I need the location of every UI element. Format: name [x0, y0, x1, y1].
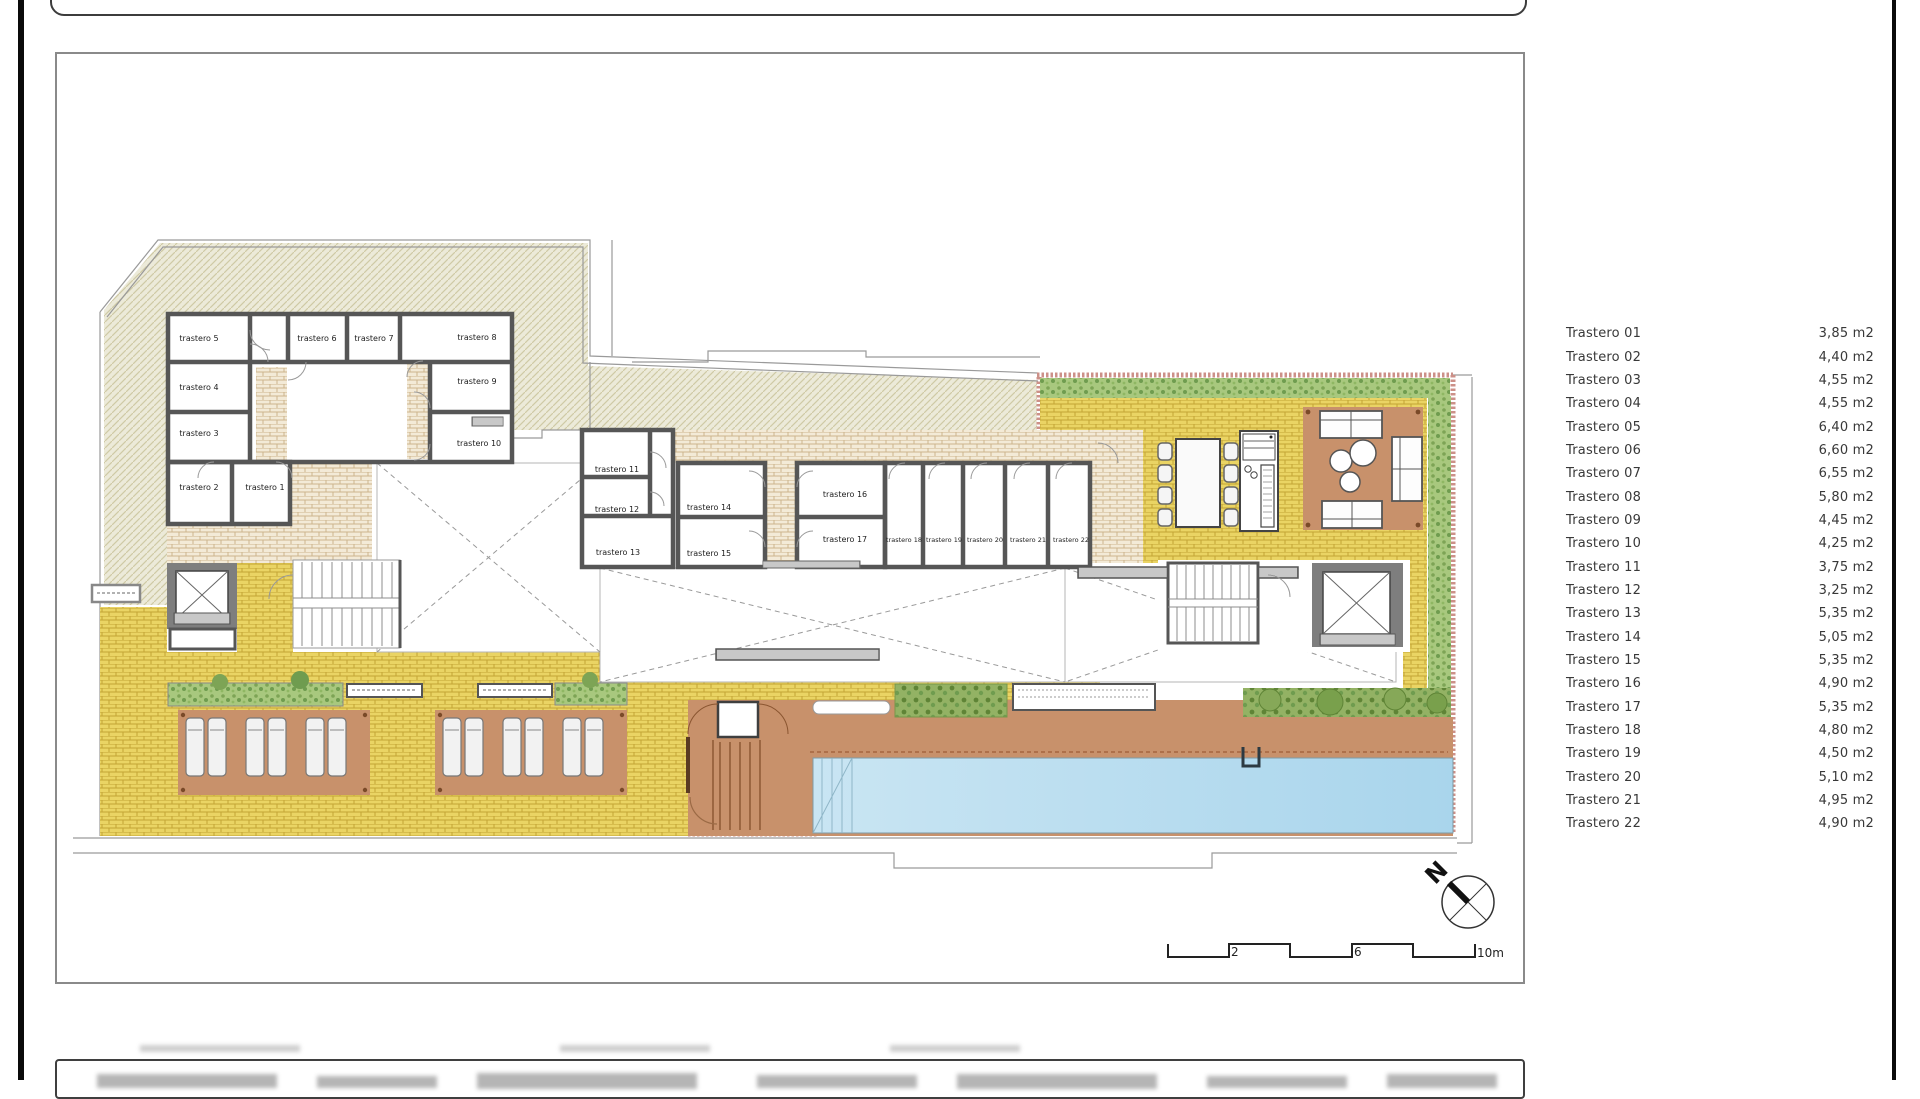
room-label: trastero 5 — [179, 334, 218, 343]
top-frame — [50, 0, 1527, 16]
legend-room-name: Trastero 01 — [1566, 326, 1641, 341]
legend-room-area: 4,90 m2 — [1819, 816, 1874, 831]
legend-room-name: Trastero 09 — [1566, 513, 1641, 528]
legend-room-name: Trastero 05 — [1566, 420, 1641, 435]
legend-room-name: Trastero 04 — [1566, 396, 1641, 411]
legend-row: Trastero 123,25 m2 — [1566, 579, 1874, 602]
legend-room-name: Trastero 02 — [1566, 350, 1641, 365]
legend-room-name: Trastero 13 — [1566, 606, 1641, 621]
stairs-right — [1168, 563, 1258, 643]
room-label: trastero 17 — [823, 535, 867, 544]
blocka-corridor-strip2 — [407, 361, 429, 459]
room-label: trastero 18 — [886, 536, 922, 544]
room-label: trastero 9 — [457, 377, 496, 386]
legend-room-name: Trastero 17 — [1566, 700, 1641, 715]
round-table — [1340, 472, 1360, 492]
faint-print-smudge — [560, 1045, 710, 1052]
room-label: trastero 12 — [595, 505, 639, 514]
room-label: trastero 22 — [1053, 536, 1089, 544]
outdoor-kitchen — [1240, 431, 1278, 531]
legend-room-name: Trastero 03 — [1566, 373, 1641, 388]
deck-shower — [718, 702, 758, 737]
legend-room-name: Trastero 11 — [1566, 560, 1641, 575]
legend-room-area: 4,45 m2 — [1819, 513, 1874, 528]
legend-room-area: 4,25 m2 — [1819, 536, 1874, 551]
legend-room-area: 5,35 m2 — [1819, 653, 1874, 668]
legend-room-name: Trastero 20 — [1566, 770, 1641, 785]
legend-row: Trastero 076,55 m2 — [1566, 462, 1874, 485]
legend-row: Trastero 113,75 m2 — [1566, 555, 1874, 578]
room-label: trastero 3 — [179, 429, 218, 438]
storage-legend: Trastero 013,85 m2 Trastero 024,40 m2 Tr… — [1566, 322, 1874, 836]
page-edge-left — [18, 0, 24, 1080]
dining-table — [1176, 439, 1220, 527]
legend-room-name: Trastero 07 — [1566, 466, 1641, 481]
legend-room-name: Trastero 10 — [1566, 536, 1641, 551]
legend-row: Trastero 194,50 m2 — [1566, 742, 1874, 765]
legend-room-name: Trastero 15 — [1566, 653, 1641, 668]
legend-room-area: 4,55 m2 — [1819, 373, 1874, 388]
room-label: trastero 10 — [457, 439, 501, 448]
legend-row: Trastero 013,85 m2 — [1566, 322, 1874, 345]
deck-bench — [813, 701, 890, 714]
legend-room-area: 4,90 m2 — [1819, 676, 1874, 691]
room-label: trastero 1 — [245, 483, 284, 492]
legend-room-area: 4,40 m2 — [1819, 350, 1874, 365]
room-label: trastero 20 — [967, 536, 1003, 544]
next-sheet-frame — [55, 1059, 1525, 1099]
scale-label-6: 6 — [1354, 945, 1362, 959]
legend-room-area: 3,85 m2 — [1819, 326, 1874, 341]
legend-room-area: 4,55 m2 — [1819, 396, 1874, 411]
legend-room-area: 5,35 m2 — [1819, 606, 1874, 621]
street-bench — [92, 585, 140, 602]
legend-room-name: Trastero 06 — [1566, 443, 1641, 458]
legend-row: Trastero 205,10 m2 — [1566, 766, 1874, 789]
legend-room-area: 6,60 m2 — [1819, 443, 1874, 458]
scale-label-10m: 10m — [1477, 946, 1504, 960]
legend-row: Trastero 214,95 m2 — [1566, 789, 1874, 812]
legend-row: Trastero 024,40 m2 — [1566, 345, 1874, 368]
legend-room-area: 4,95 m2 — [1819, 793, 1874, 808]
legend-row: Trastero 175,35 m2 — [1566, 696, 1874, 719]
legend-room-name: Trastero 16 — [1566, 676, 1641, 691]
legend-room-name: Trastero 18 — [1566, 723, 1641, 738]
legend-room-name: Trastero 19 — [1566, 746, 1641, 761]
floor-plan-svg: N 2 6 10m trastero 5 trastero 6 trastero… — [55, 52, 1525, 984]
room-label: trastero 11 — [595, 465, 639, 474]
legend-row: Trastero 066,60 m2 — [1566, 439, 1874, 462]
room-label: trastero 19 — [926, 536, 962, 544]
legend-row: Trastero 145,05 m2 — [1566, 625, 1874, 648]
legend-room-area: 5,35 m2 — [1819, 700, 1874, 715]
legend-room-name: Trastero 21 — [1566, 793, 1641, 808]
legend-row: Trastero 224,90 m2 — [1566, 812, 1874, 835]
room-label: trastero 7 — [354, 334, 393, 343]
legend-room-name: Trastero 12 — [1566, 583, 1641, 598]
legend-room-area: 6,55 m2 — [1819, 466, 1874, 481]
room-label: trastero 6 — [297, 334, 336, 343]
scale-label-2: 2 — [1231, 945, 1239, 959]
room-label: trastero 16 — [823, 490, 867, 499]
legend-row: Trastero 085,80 m2 — [1566, 485, 1874, 508]
legend-room-name: Trastero 14 — [1566, 630, 1641, 645]
pool — [813, 747, 1453, 833]
legend-row: Trastero 135,35 m2 — [1566, 602, 1874, 625]
round-table — [1330, 450, 1352, 472]
elevator-left — [167, 563, 237, 649]
legend-room-area: 3,75 m2 — [1819, 560, 1874, 575]
legend-row: Trastero 094,45 m2 — [1566, 509, 1874, 532]
room-label: trastero 4 — [179, 383, 218, 392]
legend-row: Trastero 155,35 m2 — [1566, 649, 1874, 672]
legend-room-area: 5,05 m2 — [1819, 630, 1874, 645]
legend-room-area: 5,10 m2 — [1819, 770, 1874, 785]
room-label: trastero 14 — [687, 503, 731, 512]
legend-row: Trastero 034,55 m2 — [1566, 369, 1874, 392]
room-label: trastero 2 — [179, 483, 218, 492]
legend-room-area: 4,50 m2 — [1819, 746, 1874, 761]
legend-row: Trastero 056,40 m2 — [1566, 415, 1874, 438]
plan-sheet: { "legend": { "items": [ {"name":"Traste… — [0, 0, 1920, 1080]
page-edge-right — [1892, 0, 1896, 1080]
stairs-left — [293, 560, 400, 648]
legend-row: Trastero 044,55 m2 — [1566, 392, 1874, 415]
room-label: trastero 13 — [596, 548, 640, 557]
elevator-right — [1312, 563, 1403, 647]
legend-room-area: 5,80 m2 — [1819, 490, 1874, 505]
blocka-corridor-strip — [256, 367, 287, 460]
legend-row: Trastero 184,80 m2 — [1566, 719, 1874, 742]
round-table — [1350, 440, 1376, 466]
north-compass-icon: N — [1420, 856, 1494, 928]
legend-row: Trastero 164,90 m2 — [1566, 672, 1874, 695]
scale-bar: 2 6 10m — [1168, 944, 1504, 960]
lounge-area — [1303, 407, 1423, 530]
legend-room-area: 6,40 m2 — [1819, 420, 1874, 435]
legend-room-area: 4,80 m2 — [1819, 723, 1874, 738]
legend-room-area: 3,25 m2 — [1819, 583, 1874, 598]
room-label: trastero 21 — [1010, 536, 1046, 544]
room-label: trastero 8 — [457, 333, 496, 342]
legend-row: Trastero 104,25 m2 — [1566, 532, 1874, 555]
faint-print-smudge — [890, 1045, 1020, 1052]
legend-room-name: Trastero 22 — [1566, 816, 1641, 831]
faint-print-smudge — [140, 1045, 300, 1052]
room-label: trastero 15 — [687, 549, 731, 558]
legend-room-name: Trastero 08 — [1566, 490, 1641, 505]
